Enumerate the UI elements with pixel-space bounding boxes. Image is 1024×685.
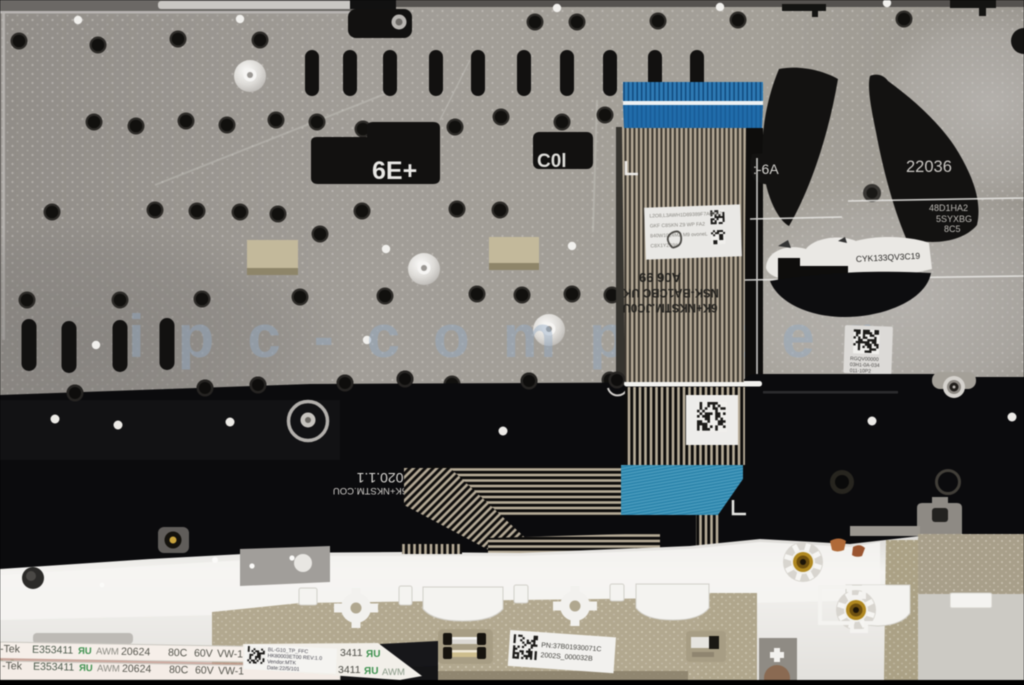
svg-text:AWM: AWM xyxy=(97,663,120,675)
svg-text:011-10P2: 011-10P2 xyxy=(850,368,872,375)
svg-text:NSK-BA1CBC UK: NSK-BA1CBC UK xyxy=(622,286,719,298)
svg-text:E353411: E353411 xyxy=(32,644,74,657)
svg-text:C8X1Y2S9#: C8X1Y2S9# xyxy=(650,243,678,250)
svg-text:6K+NKSTM.COU: 6K+NKSTM.COU xyxy=(333,485,407,496)
svg-text:ipc-computer: ipc-computer xyxy=(128,303,904,370)
svg-text:AWM: AWM xyxy=(96,646,119,658)
svg-text:80C: 80C xyxy=(169,664,189,676)
svg-text:60V: 60V xyxy=(195,664,214,676)
svg-text:20624: 20624 xyxy=(122,663,152,676)
svg-text:-Tek: -Tek xyxy=(0,643,21,655)
svg-text:20624: 20624 xyxy=(121,646,151,659)
svg-text:6K+NKSTM.JC0U: 6K+NKSTM.JC0U xyxy=(623,301,718,313)
svg-text:A06 99: A06 99 xyxy=(639,270,681,285)
svg-text:VW-1: VW-1 xyxy=(217,648,243,661)
svg-text:2020.1.1: 2020.1.1 xyxy=(357,470,412,486)
svg-text:3411: 3411 xyxy=(340,647,363,659)
svg-text:ЯU: ЯU xyxy=(79,663,93,674)
svg-text:E353411: E353411 xyxy=(33,661,75,674)
svg-text:22036: 22036 xyxy=(906,158,952,176)
svg-text:-Tek: -Tek xyxy=(2,660,23,672)
svg-text:5SYXBG: 5SYXBG xyxy=(936,214,972,224)
svg-text:C0l: C0l xyxy=(537,151,567,172)
svg-text:80C: 80C xyxy=(168,647,188,659)
svg-text:ЯU: ЯU xyxy=(78,646,92,657)
svg-text:48D1HA2: 48D1HA2 xyxy=(929,203,968,213)
svg-text:60V: 60V xyxy=(194,647,213,659)
svg-text:ЯU: ЯU xyxy=(364,666,378,677)
svg-text:3411: 3411 xyxy=(338,664,361,676)
svg-text:VW-1: VW-1 xyxy=(218,665,244,678)
svg-text:ЯU: ЯU xyxy=(366,649,380,660)
svg-text:8C5: 8C5 xyxy=(944,224,961,234)
svg-text:AWM: AWM xyxy=(382,667,405,678)
svg-text:6E+: 6E+ xyxy=(372,157,417,185)
